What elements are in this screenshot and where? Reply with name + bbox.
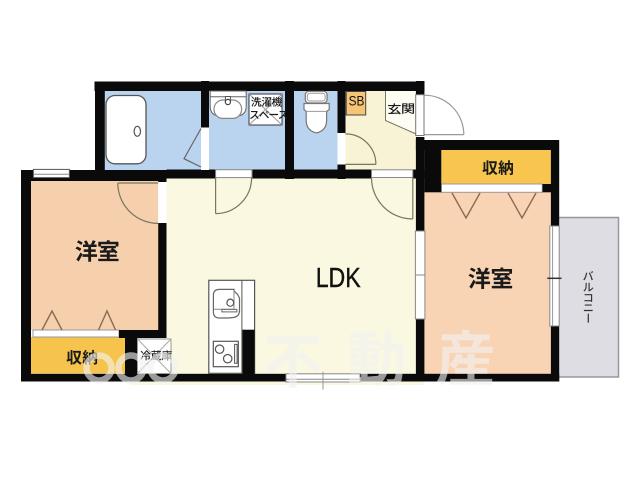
- svg-text:SB: SB: [349, 93, 365, 109]
- svg-text:LDK: LDK: [316, 262, 362, 293]
